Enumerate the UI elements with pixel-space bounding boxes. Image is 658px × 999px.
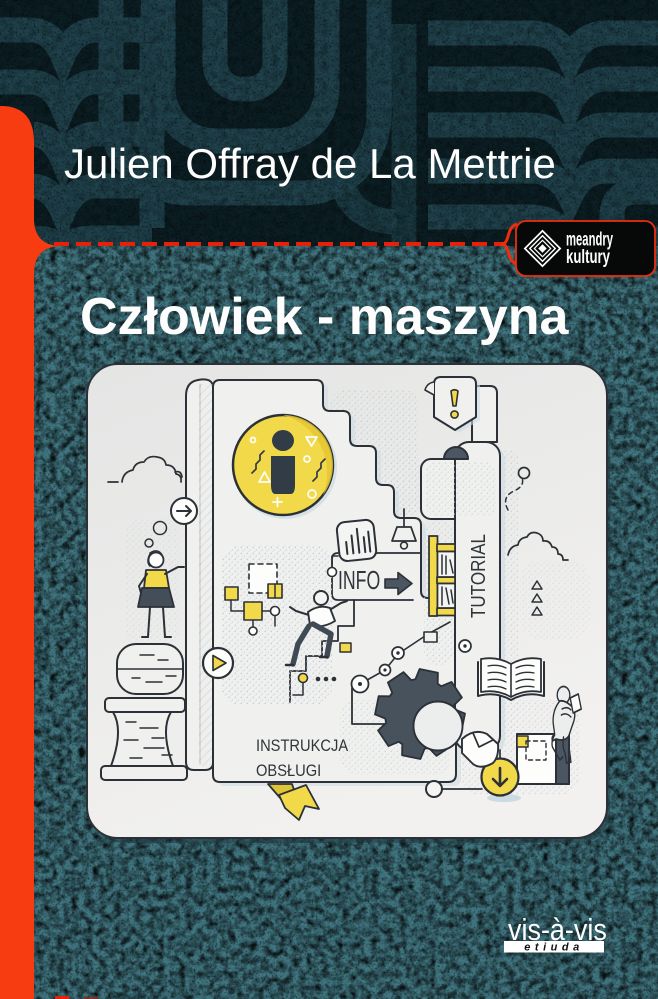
svg-text:etiuda: etiuda: [524, 942, 583, 954]
svg-text:kultury: kultury: [566, 247, 610, 268]
svg-text:OBSŁUGI: OBSŁUGI: [256, 762, 321, 780]
svg-text:TUTORIAL: TUTORIAL: [468, 534, 490, 618]
svg-text:INSTRUKCJA: INSTRUKCJA: [256, 737, 349, 755]
svg-text:Człowiek - maszyna: Człowiek - maszyna: [80, 288, 569, 346]
svg-text:Julien Offray de La Mettrie: Julien Offray de La Mettrie: [64, 140, 556, 187]
svg-text:INFO: INFO: [338, 566, 380, 595]
